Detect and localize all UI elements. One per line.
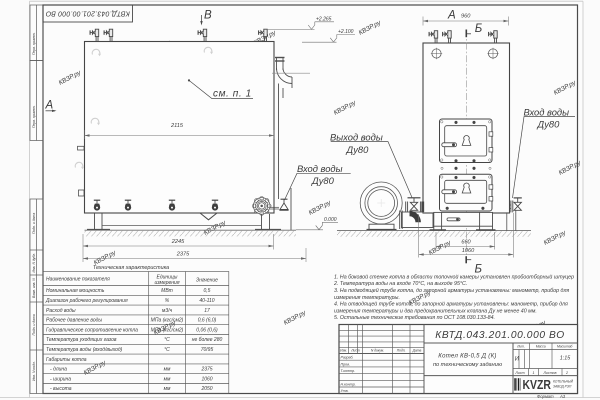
svg-text:KVZR: KVZR: [523, 378, 552, 392]
svg-text:1060: 1060: [462, 248, 475, 254]
svg-text:КВТД.043.201.00.000 ВО: КВТД.043.201.00.000 ВО: [435, 330, 564, 341]
svg-text:2115: 2115: [170, 123, 184, 129]
svg-text:N докум.: N докум.: [371, 349, 384, 353]
svg-text:Подп. и дата: Подп. и дата: [32, 314, 36, 335]
svg-text:Ду80: Ду80: [346, 144, 370, 155]
svg-text:Габариты котла: Габариты котла: [46, 357, 87, 363]
svg-text:0,5: 0,5: [204, 288, 211, 294]
svg-text:Пров.: Пров.: [341, 362, 350, 366]
svg-text:2. Температура воды на входе: 2. Температура воды на входе 70°С, на вы…: [333, 281, 467, 287]
svg-text:+2.265: +2.265: [316, 17, 332, 23]
svg-text:Инв. N дубл.: Инв. N дубл.: [32, 253, 36, 273]
svg-text:Листов: Листов: [542, 371, 556, 375]
svg-text:0,6 (6,0): 0,6 (6,0): [198, 318, 217, 324]
svg-text:Масса: Масса: [536, 344, 546, 348]
svg-text:Лист: Лист: [514, 371, 524, 375]
svg-text:Техническая характеристика: Техническая характеристика: [93, 265, 169, 271]
svg-text:Подп.: Подп.: [397, 349, 406, 353]
svg-text:измерения температуры и два пр: измерения температуры и два предохраните…: [334, 308, 537, 314]
svg-text:Перв. примен.: Перв. примен.: [32, 32, 36, 55]
svg-text:1. На боковой стенке котла в: 1. На боковой стенке котла в области топ…: [334, 273, 574, 280]
svg-text:Выход воды: Выход воды: [330, 131, 383, 142]
svg-text:Вход воды: Вход воды: [524, 106, 570, 117]
svg-text:40-110: 40-110: [199, 298, 214, 304]
svg-text:Вход воды: Вход воды: [297, 163, 343, 174]
svg-text:960: 960: [461, 14, 471, 20]
svg-text:мм: мм: [164, 367, 171, 373]
svg-text:Котел КВ-0,5 Д (К): Котел КВ-0,5 Д (К): [438, 354, 496, 360]
svg-text:Инв. N подл.: Инв. N подл.: [32, 361, 36, 381]
svg-text:И: И: [515, 357, 520, 363]
svg-text:мм: мм: [164, 386, 171, 392]
svg-text:В: В: [204, 10, 212, 22]
svg-text:МВт: МВт: [161, 288, 173, 294]
svg-text:см. п. 1: см. п. 1: [213, 89, 252, 100]
svg-text:не более 280: не более 280: [192, 337, 223, 343]
svg-text:°С: °С: [164, 347, 170, 353]
svg-text:КВТД.043.201.00.000 ВО: КВТД.043.201.00.000 ВО: [45, 10, 130, 17]
svg-text:0,06 (0,6): 0,06 (0,6): [196, 327, 218, 333]
svg-text:ЗАВОД РЭП: ЗАВОД РЭП: [553, 385, 572, 389]
svg-text:Гидравлическое сопротивление к: Гидравлическое сопротивление котла: [46, 327, 138, 333]
svg-text:А3: А3: [559, 394, 566, 399]
svg-text:1:15: 1:15: [560, 356, 571, 362]
svg-text:МПа (кгс/см2): МПа (кгс/см2): [151, 327, 184, 333]
svg-text:Температура воды (вход/выход): Температура воды (вход/выход): [46, 347, 123, 353]
svg-text:Масштаб: Масштаб: [557, 344, 573, 348]
svg-text:Формат: Формат: [537, 394, 554, 399]
svg-text:Ду80: Ду80: [311, 175, 335, 186]
svg-text:660: 660: [461, 240, 471, 246]
svg-text:Ду80: Ду80: [537, 119, 561, 130]
svg-text:- ширина: - ширина: [50, 376, 71, 382]
svg-text:5. Остальные технические треб: 5. Остальные технические требования по О…: [334, 315, 495, 321]
svg-text:Разраб.: Разраб.: [341, 356, 354, 360]
svg-text:2375: 2375: [200, 367, 212, 373]
svg-text:Взам. инв. N: Взам. инв. N: [32, 278, 36, 298]
svg-text:МПа (кгс/см2): МПа (кгс/см2): [151, 318, 184, 324]
svg-text:Утв.: Утв.: [341, 389, 349, 393]
svg-text:м3/ч: м3/ч: [162, 308, 173, 314]
svg-text:1060: 1060: [201, 376, 212, 382]
svg-text:Номинальная мощность: Номинальная мощность: [46, 288, 105, 294]
svg-text:2245: 2245: [171, 239, 185, 245]
svg-text:Значение: Значение: [196, 277, 218, 283]
svg-text:измерения: измерения: [154, 280, 179, 286]
svg-text:+2.100: +2.100: [338, 29, 354, 35]
svg-text:Температура уходящих газов: Температура уходящих газов: [46, 337, 117, 343]
svg-text:Диапазон рабочего регулировани: Диапазон рабочего регулирования: [45, 298, 128, 304]
svg-text:КОТЕЛЬНЫЙ: КОТЕЛЬНЫЙ: [553, 380, 574, 384]
svg-text:0.000: 0.000: [324, 217, 337, 223]
svg-text:- высота: - высота: [50, 386, 72, 392]
svg-text:Н.контр.: Н.контр.: [341, 382, 356, 386]
svg-text:- длина: - длина: [50, 367, 67, 373]
svg-text:Дата: Дата: [412, 349, 422, 353]
svg-text:2375: 2375: [176, 252, 190, 258]
svg-text:Лит.: Лит.: [516, 344, 525, 348]
svg-text:Перв. примен.: Перв. примен.: [32, 105, 36, 128]
svg-text:17: 17: [204, 308, 210, 314]
svg-text:Лист: Лист: [350, 349, 360, 353]
svg-text:4. На отводящей трубе котла,: 4. На отводящей трубе котла, до запорной…: [334, 301, 568, 308]
svg-text:Изм.: Изм.: [340, 349, 347, 353]
svg-text:мм: мм: [164, 376, 171, 382]
svg-text:3. На подводящей трубе котла,: 3. На подводящей трубе котла, до запорно…: [334, 287, 569, 294]
svg-text:по техническому заданию: по техническому заданию: [433, 362, 503, 368]
svg-text:%: %: [165, 298, 170, 304]
svg-text:Наименование показателя: Наименование показателя: [46, 277, 110, 283]
svg-text:Т.контр.: Т.контр.: [341, 369, 356, 373]
svg-text:измерения температуры.: измерения температуры.: [334, 295, 400, 301]
svg-text:2: 2: [565, 371, 568, 375]
svg-text:Подп. и дата: Подп. и дата: [32, 213, 36, 234]
svg-text:Рабочее давление воды: Рабочее давление воды: [46, 318, 102, 324]
svg-text:Б: Б: [475, 23, 483, 35]
svg-text:°С: °С: [164, 337, 170, 343]
svg-text:1: 1: [533, 371, 535, 375]
svg-text:70/95: 70/95: [201, 347, 214, 353]
svg-text:А: А: [447, 10, 456, 22]
svg-text:2050: 2050: [200, 386, 212, 392]
svg-text:Расход воды: Расход воды: [46, 308, 76, 314]
